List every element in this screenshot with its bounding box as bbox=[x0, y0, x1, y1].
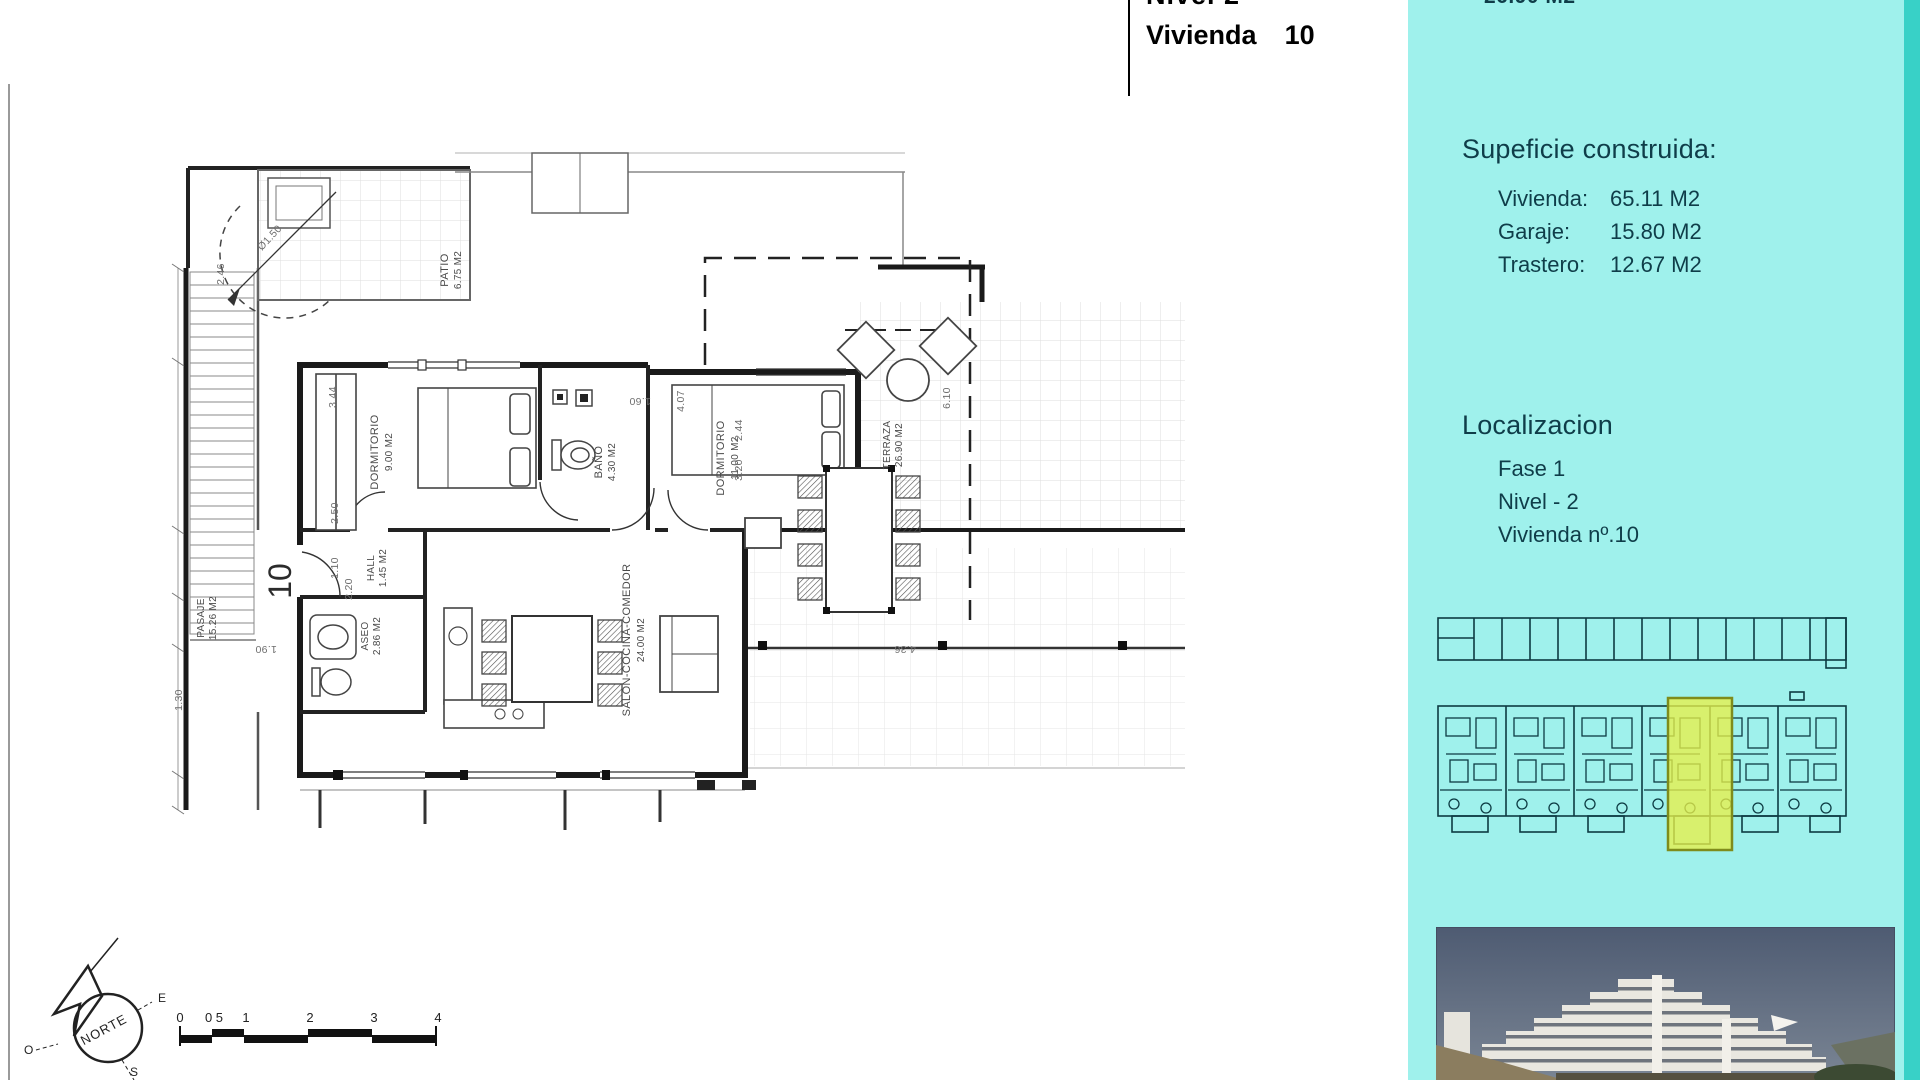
scale-2: 2 bbox=[306, 1010, 313, 1025]
title-nivel: Nivel 2 bbox=[1146, 0, 1240, 11]
bedroom2-furniture bbox=[672, 385, 844, 475]
plan-sheet-page: PATIO 6.75 M2 DORMITORIO 9.00 M2 BAÑO 4.… bbox=[0, 0, 1920, 1080]
location-item-nivel: Nivel - 2 bbox=[1498, 485, 1639, 518]
title-divider-line bbox=[1128, 0, 1130, 96]
unit-number: 10 bbox=[262, 563, 298, 599]
dim-2.46: 2.46 bbox=[215, 263, 227, 285]
hall-label: HALL bbox=[366, 555, 377, 581]
location-item-vivienda: Vivienda nº.10 bbox=[1498, 518, 1639, 551]
sidebar-partial-top-value: 26.90 M2 bbox=[1484, 0, 1576, 9]
siteplan-highlighted-unit bbox=[1668, 698, 1732, 850]
scale-05: 0 5 bbox=[205, 1010, 223, 1025]
title-block: Nivel 2 Vivienda10 bbox=[1143, 0, 1413, 72]
surface-item-trastero: Trastero:12.67 M2 bbox=[1498, 248, 1702, 281]
dim-4.36: 4.36 bbox=[894, 643, 916, 655]
siteplan-thumbnail bbox=[1422, 598, 1882, 860]
title-vivienda-label: Vivienda bbox=[1146, 20, 1257, 50]
bano-label: BAÑO bbox=[592, 446, 605, 479]
scale-4: 4 bbox=[434, 1010, 441, 1025]
dim-1.30: 1.30 bbox=[173, 689, 185, 711]
hall-area-label: 1.45 M2 bbox=[378, 549, 389, 587]
aseo-area-label: 2.86 M2 bbox=[372, 617, 383, 655]
dim-2.44: 2.44 bbox=[733, 419, 745, 441]
surface-item-garaje: Garaje:15.80 M2 bbox=[1498, 215, 1702, 248]
dorm1-area-label: 9.00 M2 bbox=[384, 433, 395, 471]
bathroom-fixtures bbox=[552, 390, 595, 470]
dim-4.07: 4.07 bbox=[675, 390, 687, 412]
compass-south: S bbox=[130, 1065, 138, 1079]
scale-3: 3 bbox=[370, 1010, 377, 1025]
cut-walls-top bbox=[455, 153, 985, 302]
bano-area-label: 4.30 M2 bbox=[607, 443, 618, 481]
compass-east: E bbox=[158, 991, 166, 1005]
dim-1.10: 1.10 bbox=[329, 557, 341, 579]
compass-west: O bbox=[24, 1043, 33, 1057]
pasaje-label: PASAJE bbox=[196, 598, 207, 637]
dim-2.20: 2.20 bbox=[343, 578, 355, 600]
salon-area-label: 24.00 M2 bbox=[636, 618, 647, 662]
salon-label: SALON-COCINA-COMEDOR bbox=[621, 564, 633, 717]
terraza-area-label: 26.90 M2 bbox=[894, 423, 905, 467]
compass-rose: NORTE E O S bbox=[24, 938, 166, 1080]
dining-set bbox=[482, 616, 622, 706]
title-vivienda: Vivienda10 bbox=[1146, 20, 1315, 51]
patio-area-label: 6.75 M2 bbox=[453, 251, 464, 289]
compass-north-label: NORTE bbox=[78, 1011, 129, 1048]
dorm2-label: DORMITORIO bbox=[715, 420, 727, 495]
building-photo bbox=[1436, 927, 1895, 1080]
siteplan-apartments bbox=[1438, 706, 1846, 844]
bedroom1-furniture bbox=[316, 374, 536, 530]
pasaje-stairs bbox=[172, 264, 258, 814]
floorplan-drawing: PATIO 6.75 M2 DORMITORIO 9.00 M2 BAÑO 4.… bbox=[0, 0, 1408, 1080]
dim-3.44: 3.44 bbox=[327, 386, 339, 408]
surface-list: Vivienda:65.11 M2 Garaje:15.80 M2 Traste… bbox=[1498, 182, 1702, 281]
scale-1: 1 bbox=[242, 1010, 249, 1025]
dim-3.20: 3.20 bbox=[733, 459, 745, 481]
neighbor-fragments bbox=[300, 780, 756, 830]
scale-0: 0 bbox=[176, 1010, 183, 1025]
title-vivienda-number: 10 bbox=[1285, 20, 1315, 50]
dorm1-label: DORMITORIO bbox=[369, 414, 381, 489]
surface-heading: Supeficie construida: bbox=[1462, 134, 1717, 165]
info-sidebar: 26.90 M2 Supeficie construida: Vivienda:… bbox=[1408, 0, 1920, 1080]
scale-bar: 0 0 5 1 2 3 4 bbox=[176, 1010, 441, 1046]
patio-label: PATIO bbox=[439, 253, 451, 286]
terrace-dining bbox=[798, 465, 920, 614]
sidebar-right-edge bbox=[1904, 0, 1920, 1080]
surface-item-vivienda: Vivienda:65.11 M2 bbox=[1498, 182, 1702, 215]
pasaje-area-label: 15.26 M2 bbox=[208, 596, 219, 640]
dim-1.90: 1.90 bbox=[255, 643, 277, 655]
location-list: Fase 1 Nivel - 2 Vivienda nº.10 bbox=[1498, 452, 1639, 551]
dim-6.10: 6.10 bbox=[941, 387, 953, 409]
dim-2.50: 2.50 bbox=[329, 502, 341, 524]
location-heading: Localizacion bbox=[1462, 410, 1613, 441]
location-item-fase: Fase 1 bbox=[1498, 452, 1639, 485]
terraza-label: TERRAZA bbox=[882, 421, 893, 470]
aseo-fixtures bbox=[310, 615, 356, 696]
aseo-label: ASEO bbox=[360, 622, 371, 651]
dim-1.60: 1.60 bbox=[629, 395, 651, 407]
siteplan-garages bbox=[1438, 618, 1846, 700]
